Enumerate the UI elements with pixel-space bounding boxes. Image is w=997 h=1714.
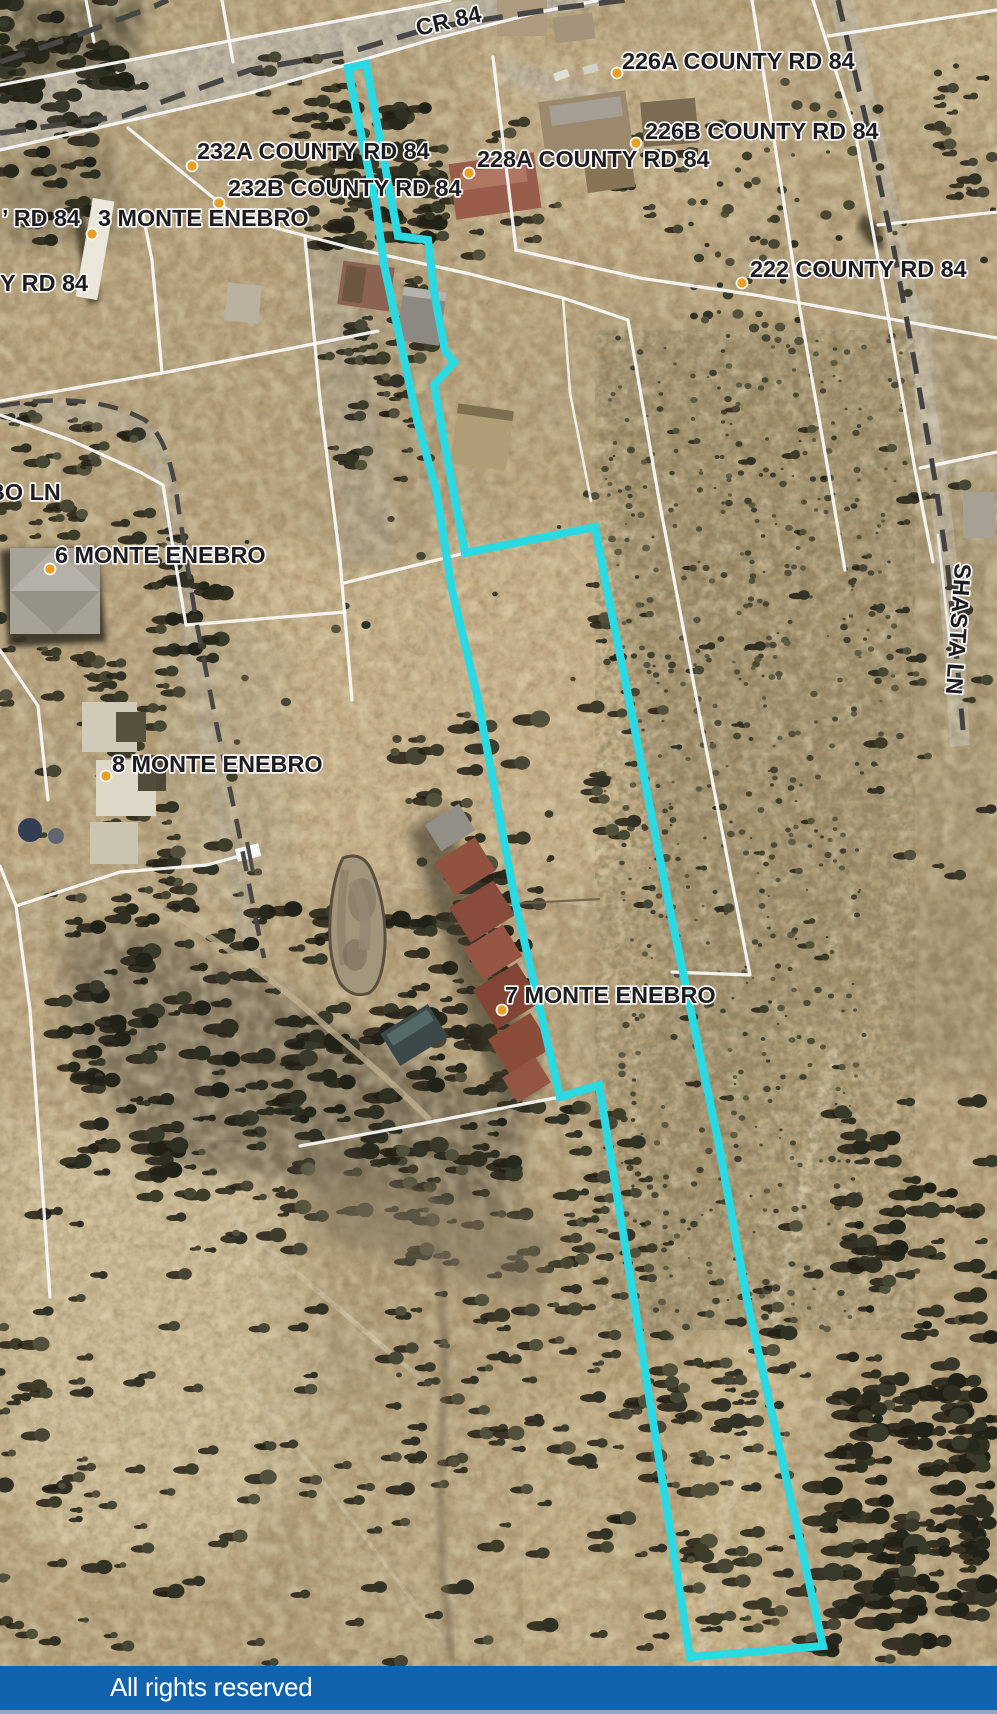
svg-text:All rights reserved: All rights reserved (110, 1672, 312, 1702)
